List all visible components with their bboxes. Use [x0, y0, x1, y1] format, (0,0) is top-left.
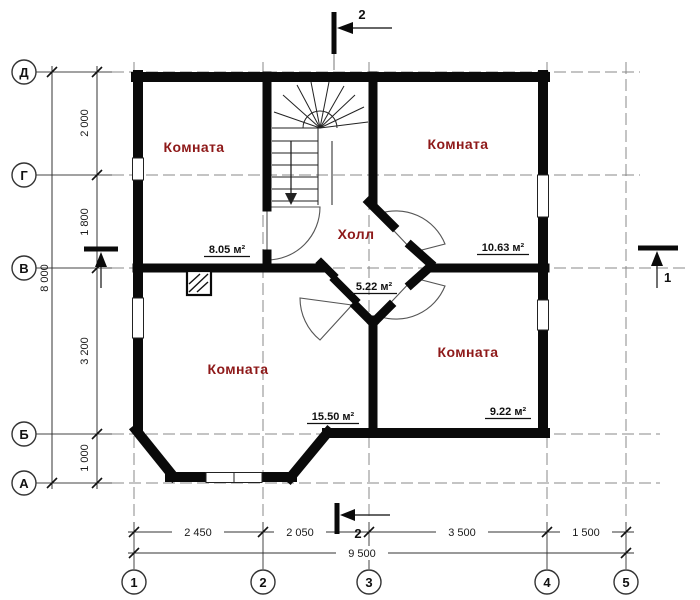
- axis-row-label-g: Г: [20, 168, 28, 183]
- left-dimension-labels: 2 000 1 800 3 200 1 000 8 000: [39, 109, 91, 472]
- room-label-hall: Холл: [338, 226, 375, 242]
- area-underlines: [204, 255, 531, 424]
- axis-col-label-3: 3: [365, 575, 372, 590]
- room-label-upper-right: Комната: [428, 136, 489, 152]
- dim-bottom-seg-3: 3 500: [448, 527, 476, 539]
- area-hall: 5.22 м²: [356, 281, 393, 293]
- window-right-lower: [538, 300, 549, 330]
- axis-row-label-b: Б: [19, 427, 28, 442]
- section-2-top-label: 2: [358, 7, 365, 22]
- dim-bottom-seg-4: 1 500: [572, 527, 600, 539]
- room-label-lower-right: Комната: [438, 344, 499, 360]
- axis-col-label-5: 5: [622, 575, 629, 590]
- axis-col-label-4: 4: [543, 575, 551, 590]
- window-right-upper: [538, 175, 549, 217]
- room-label-upper-left: Комната: [164, 139, 225, 155]
- section-2-bottom-marker: 2: [337, 503, 390, 541]
- window-left-lower: [133, 298, 144, 338]
- wall-bay-diag-left: [136, 430, 173, 476]
- flue-block: [187, 271, 211, 295]
- axis-row-label-v: В: [19, 261, 28, 276]
- area-lower-right: 9.22 м²: [490, 406, 527, 418]
- section-2-bottom-label: 2: [354, 526, 361, 541]
- floor-plan-page: 2 000 1 800 3 200 1 000 8 000 2 450 2 05…: [0, 0, 700, 600]
- axis-row-label-d: Д: [19, 65, 29, 80]
- axis-row-label-a: А: [19, 476, 29, 491]
- dim-left-seg-3: 3 200: [79, 337, 91, 365]
- floor-plan-drawing: 2 000 1 800 3 200 1 000 8 000 2 450 2 05…: [0, 0, 700, 600]
- section-2-top-marker: 2: [334, 7, 392, 70]
- dim-bottom-total: 9 500: [348, 548, 376, 560]
- axis-col-label-1: 1: [130, 575, 137, 590]
- axis-col-label-2: 2: [259, 575, 266, 590]
- dim-left-total: 8 000: [39, 264, 51, 292]
- dim-left-seg-2: 1 800: [79, 208, 91, 236]
- stair-arrow-head: [285, 193, 297, 205]
- wall-row-v-left-endcut: [321, 263, 333, 275]
- dim-bottom-seg-2: 2 050: [286, 527, 314, 539]
- door-lower-left-room: [300, 298, 352, 340]
- wall-hall-ne-diag: [369, 202, 393, 226]
- section-markers: 2 2 1: [84, 7, 678, 541]
- bottom-dimension-labels: 2 450 2 050 3 500 1 500 9 500: [172, 524, 612, 560]
- area-lower-left: 15.50 м²: [312, 411, 355, 423]
- section-1-right-label: 1: [664, 270, 671, 285]
- wall-bay-diag-right: [290, 432, 328, 478]
- wall-hall-sw-diag: [335, 280, 355, 300]
- door-upper-left-room: [267, 207, 320, 260]
- dim-left-seg-1: 2 000: [79, 109, 91, 137]
- staircase: [272, 82, 368, 205]
- room-label-lower-left: Комната: [208, 361, 269, 377]
- dim-bottom-seg-1: 2 450: [184, 527, 212, 539]
- window-left-upper: [133, 158, 144, 180]
- area-upper-left: 8.05 м²: [209, 244, 246, 256]
- area-upper-right: 10.63 м²: [482, 242, 525, 254]
- dim-left-seg-4: 1 000: [79, 444, 91, 472]
